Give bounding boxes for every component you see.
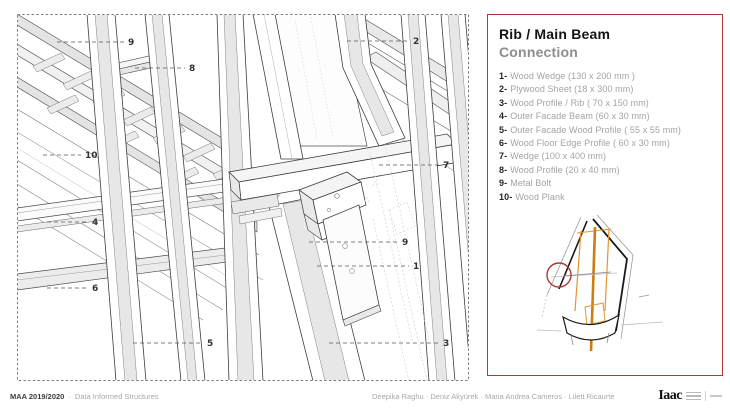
legend-item: 5-Outer Facade Wood Profile ( 55 x 55 mm…: [499, 124, 722, 137]
legend-item-number: 7-: [499, 151, 507, 161]
iaac-logo: Iaac: [658, 388, 722, 404]
metal-bolt: [350, 269, 355, 274]
legend-item-number: 4-: [499, 111, 507, 121]
legend-item: 8-Wood Profile (20 x 40 mm): [499, 164, 722, 177]
callout-label: 2: [413, 37, 419, 47]
iaac-logo-divider: [705, 391, 706, 401]
legend-item: 6-Wood Floor Edge Profile ( 60 x 30 mm): [499, 137, 722, 150]
legend-item: 10-Wood Plank: [499, 191, 722, 204]
legend-list: 1-Wood Wedge (130 x 200 mm )2-Plywood Sh…: [488, 61, 722, 204]
connection-drawing: 982107465913: [17, 14, 469, 381]
legend-item: 1-Wood Wedge (130 x 200 mm ): [499, 70, 722, 83]
legend-item-text: Wood Profile (20 x 40 mm): [510, 165, 619, 175]
legend-item-text: Wood Profile / Rib ( 70 x 150 mm): [510, 98, 649, 108]
footer-program: MAA 2019/2020·Data Informed Structures: [10, 392, 159, 401]
legend-item-text: Plywood Sheet (18 x 300 mm): [510, 84, 633, 94]
legend-panel: Rib / Main Beam Connection 1-Wood Wedge …: [487, 14, 723, 376]
slide: 982107465913 Rib / Main Beam Connection …: [0, 0, 730, 411]
panel-title-line1: Rib / Main Beam: [499, 25, 722, 43]
program-label: MAA 2019/2020: [10, 392, 64, 401]
legend-item-text: Wood Plank: [515, 192, 564, 202]
legend-item-number: 10-: [499, 192, 512, 202]
legend-item: 3-Wood Profile / Rib ( 70 x 150 mm): [499, 97, 722, 110]
callout-label: 9: [402, 238, 408, 248]
legend-item-number: 6-: [499, 138, 507, 148]
callout-label: 3: [443, 339, 449, 349]
legend-item-number: 5-: [499, 125, 507, 135]
iaac-logo-text: Iaac: [658, 388, 682, 404]
legend-item-number: 2-: [499, 84, 507, 94]
legend-item-text: Metal Bolt: [510, 178, 551, 188]
legend-item-text: Wedge (100 x 400 mm): [510, 151, 606, 161]
callout-label: 6: [92, 284, 98, 294]
legend-item-text: Wood Floor Edge Profile ( 60 x 30 mm): [510, 138, 670, 148]
panel-title-line2: Connection: [499, 43, 722, 61]
callout-label: 10: [85, 151, 98, 161]
section-inset-svg: [536, 211, 668, 369]
section-inset: [536, 211, 668, 369]
legend-item-text: Outer Facade Wood Profile ( 55 x 55 mm): [510, 125, 681, 135]
legend-item: 9-Metal Bolt: [499, 177, 722, 190]
legend-item-number: 8-: [499, 165, 507, 175]
footer: MAA 2019/2020·Data Informed Structures D…: [0, 387, 730, 411]
callout-label: 4: [92, 218, 98, 228]
legend-item: 2-Plywood Sheet (18 x 300 mm): [499, 83, 722, 96]
connection-drawing-svg: 982107465913: [17, 14, 469, 381]
panel-title: Rib / Main Beam Connection: [488, 15, 722, 61]
callout-label: 5: [207, 339, 213, 349]
callout-label: 1: [413, 262, 419, 272]
legend-item-number: 3-: [499, 98, 507, 108]
iaac-smalltext: [686, 392, 701, 401]
legend-item-number: 9-: [499, 178, 507, 188]
course-label: Data Informed Structures: [75, 392, 159, 401]
legend-item: 7-Wedge (100 x 400 mm): [499, 150, 722, 163]
callout-label: 9: [128, 38, 134, 48]
footer-separator: ·: [68, 392, 71, 401]
footer-credits: Deepika Raghu · Deniz Akyürek · Maria An…: [372, 392, 615, 401]
metal-bolt: [343, 244, 348, 249]
legend-item-number: 1-: [499, 71, 507, 81]
legend-item-text: Wood Wedge (130 x 200 mm ): [510, 71, 635, 81]
callout-label: 7: [443, 161, 449, 171]
iaac-tagline: [710, 395, 722, 397]
legend-item-text: Outer Facade Beam (60 x 30 mm): [510, 111, 650, 121]
legend-item: 4-Outer Facade Beam (60 x 30 mm): [499, 110, 722, 123]
callout-label: 8: [189, 64, 195, 74]
